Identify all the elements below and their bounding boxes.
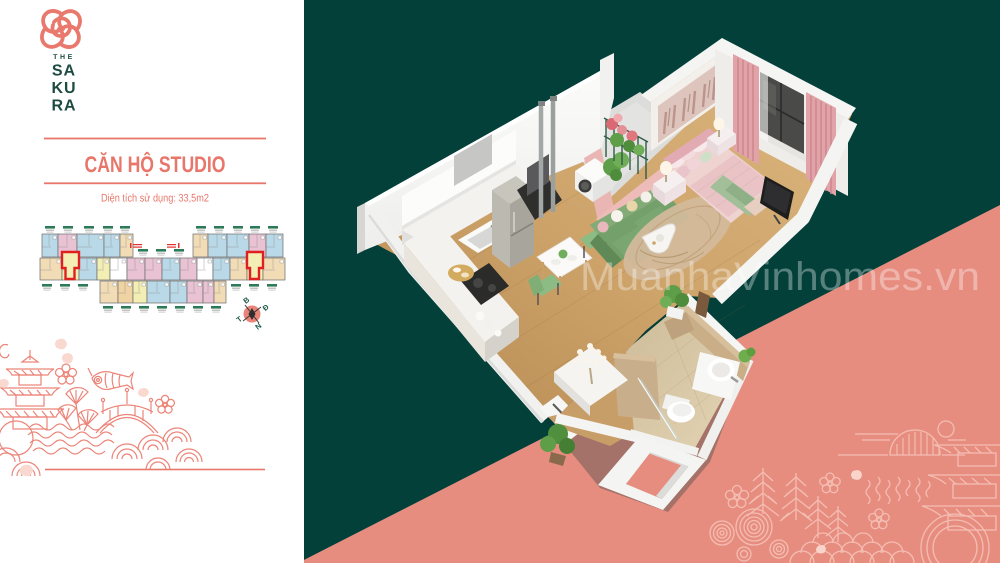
svg-text:SA: SA bbox=[52, 63, 76, 80]
svg-text:MuanhaVinhomes.vn: MuanhaVinhomes.vn bbox=[580, 255, 980, 299]
svg-text:KU: KU bbox=[51, 80, 76, 97]
svg-text:CĂN HỘ STUDIO: CĂN HỘ STUDIO bbox=[85, 151, 226, 177]
svg-text:Diện tích sử dụng: 33,5m2: Diện tích sử dụng: 33,5m2 bbox=[101, 193, 209, 205]
svg-text:RA: RA bbox=[51, 98, 76, 115]
svg-text:THE: THE bbox=[53, 54, 75, 61]
